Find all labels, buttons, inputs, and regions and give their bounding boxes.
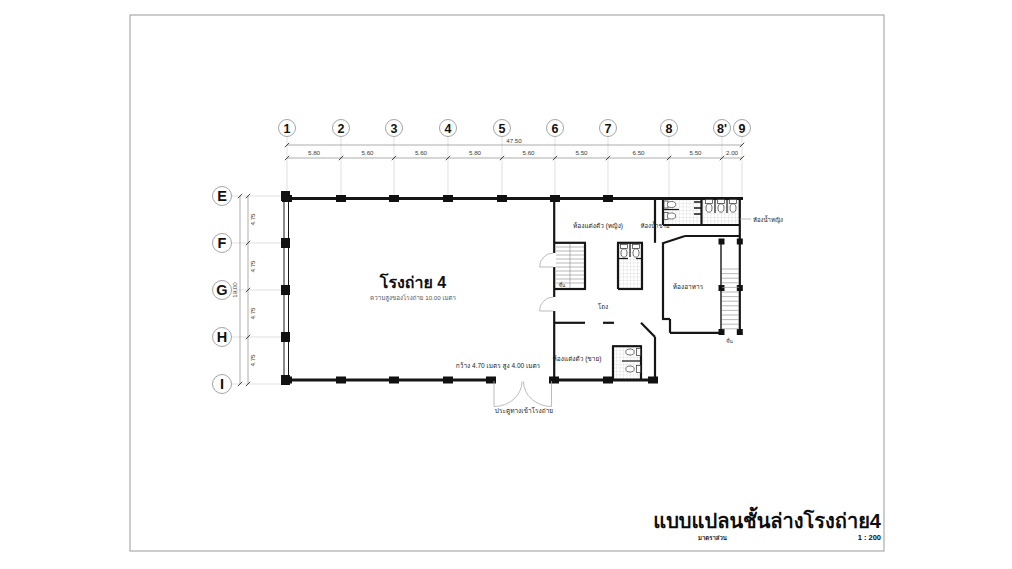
scale-label: มาตราส่วน (698, 535, 728, 541)
studio-height-note: ความสูงของโรงถ่าย 10.00 เมตร (370, 294, 457, 302)
dim-col-span-2: 5.60 (361, 149, 374, 156)
sheet-title: แบบแปลนชั้นล่างโรงถ่าย4 (653, 506, 882, 532)
dim-col-span-3: 5.60 (415, 149, 428, 156)
dim-row-span-2: 4.75 (249, 260, 256, 273)
paper-border (130, 15, 884, 551)
grid-col-5: 5 (499, 122, 506, 136)
grid-row-F: F (218, 235, 227, 251)
grid-row-G: G (216, 282, 227, 298)
dim-row-span-3: 4.75 (249, 307, 256, 320)
grid-row-I: I (220, 376, 224, 392)
grid-col-1: 1 (284, 122, 291, 136)
dim-col-span-1: 5.80 (308, 149, 321, 156)
dressing-male-label: ห้องแต่งตัว (ชาย) (553, 355, 602, 363)
grid-col-6: 6 (552, 122, 559, 136)
studio-name-label: โรงถ่าย 4 (379, 272, 446, 291)
grid-col-7: 7 (605, 122, 612, 136)
scale-value: 1 : 200 (858, 533, 881, 542)
dim-col-span-9: 2.00 (726, 149, 739, 156)
grid-col-3: 3 (391, 122, 398, 136)
dim-col-span-7: 6.50 (632, 149, 645, 156)
stair-left-up-label: ขึ้น (559, 281, 566, 288)
dim-row-span-1: 4.75 (249, 213, 256, 226)
dining-label: ห้องอาหาร (673, 283, 704, 290)
grid-row-H: H (217, 329, 227, 345)
grid-col-9: 9 (739, 122, 746, 136)
dressing-female-label: ห้องแต่งตัว (หญิง) (573, 222, 623, 230)
drawing-sheet-stage: 47.50 5.80 5.60 5.60 5.80 5.60 5.50 6.50… (0, 0, 1012, 569)
dim-col-span-5: 5.60 (522, 149, 535, 156)
dim-row-span-4: 4.75 (249, 354, 256, 367)
dim-total-width: 47.50 (506, 137, 522, 144)
entrance-label: ประตูทางเข้าโรงถ่าย (495, 407, 553, 415)
stair-right-up-label: ขึ้น (726, 337, 733, 344)
floor-plan-canvas: 47.50 5.80 5.60 5.60 5.80 5.60 5.50 6.50… (0, 0, 1012, 569)
dim-col-span-6: 5.50 (575, 149, 588, 156)
hall-label: โถง (598, 303, 609, 310)
dim-col-span-4: 5.80 (469, 149, 482, 156)
grid-col-8p: 8' (717, 122, 727, 136)
entrance-size-note: กว้าง 4.70 เมตร สูง 4.00 เมตร (456, 362, 541, 370)
grid-col-2: 2 (338, 122, 345, 136)
dim-col-span-8: 5.50 (689, 149, 702, 156)
grid-col-4: 4 (445, 122, 452, 136)
grid-col-8: 8 (666, 122, 673, 136)
grid-row-E: E (217, 188, 227, 204)
